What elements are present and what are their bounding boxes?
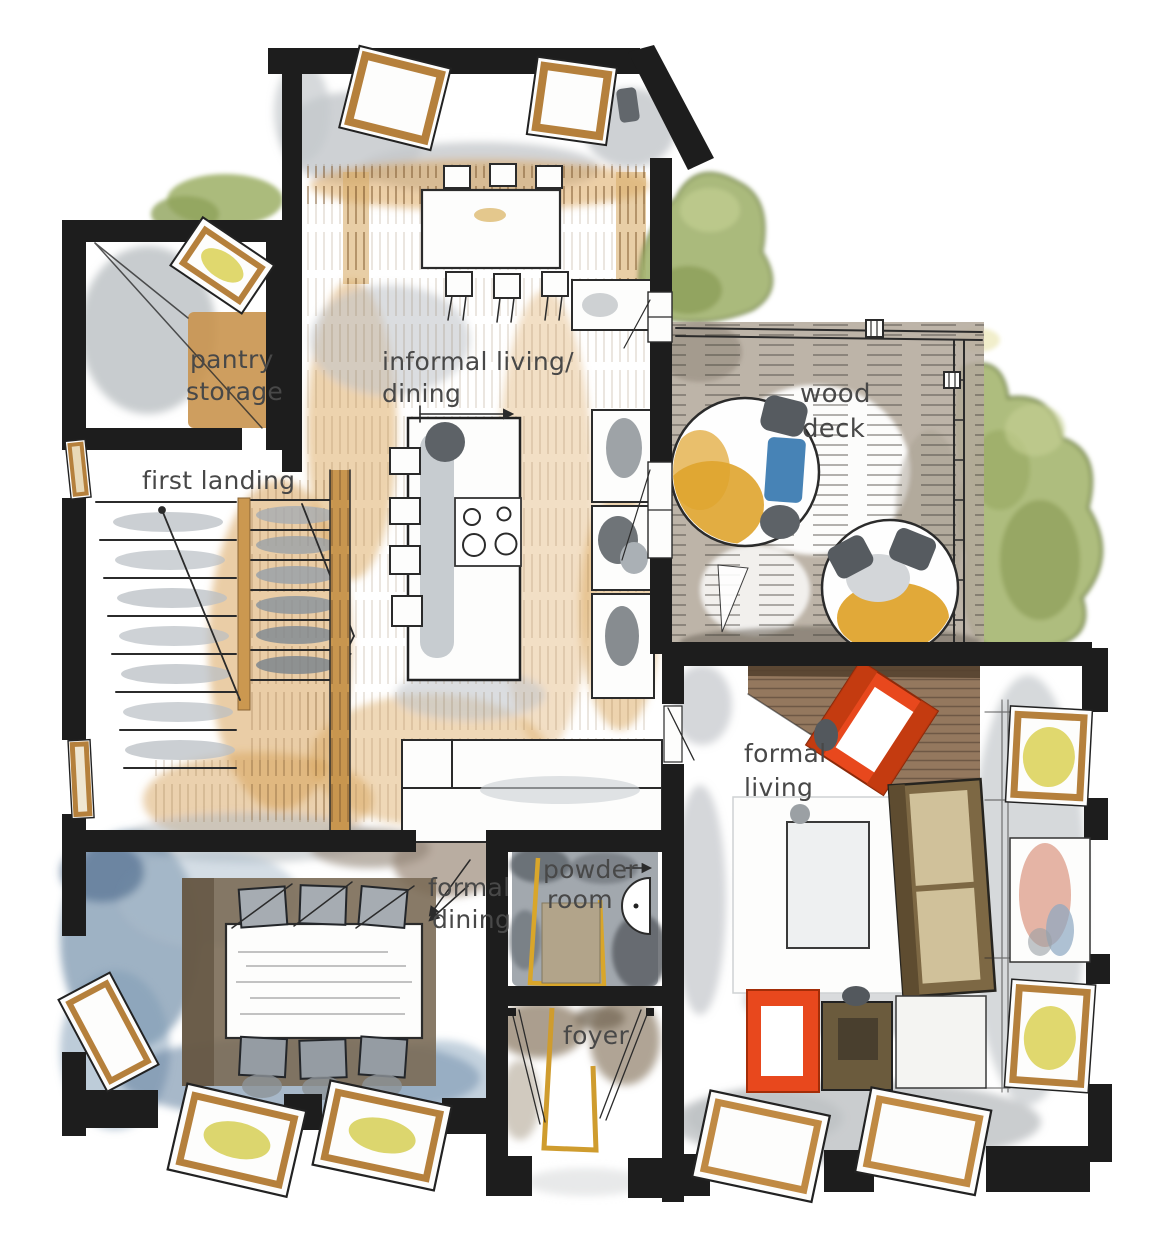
sink-drain	[634, 904, 639, 909]
cushion	[760, 505, 800, 539]
doorway	[664, 706, 682, 762]
stair-divider	[238, 498, 250, 710]
label-line: living	[744, 773, 813, 802]
wall-segment	[1088, 1084, 1112, 1162]
chair	[299, 1039, 346, 1079]
room-label-first-landing: first landing	[142, 466, 295, 495]
railing-post	[866, 320, 883, 337]
room-formal-living	[733, 652, 1010, 1092]
label-line: foyer	[563, 1021, 629, 1050]
chair	[494, 274, 520, 298]
wall-segment	[500, 830, 672, 852]
chair	[444, 166, 470, 188]
watercolor-floor-plan: pantry storage first landing informal li…	[0, 0, 1160, 1258]
chair	[359, 1036, 408, 1077]
wall-segment	[1082, 648, 1108, 712]
bar-stool	[390, 498, 420, 524]
floor-plan-drawing: pantry storage first landing informal li…	[0, 0, 1160, 1258]
wood-wall-stripes	[330, 470, 350, 840]
cabinet-shade	[480, 776, 640, 804]
bar-stool	[390, 546, 420, 574]
label-line: storage	[186, 377, 283, 406]
kitchen-island	[408, 418, 521, 680]
bath-mat	[542, 903, 600, 983]
wall-segment	[62, 814, 86, 936]
coffee-table	[787, 822, 869, 948]
dining-chairs-top	[232, 882, 414, 928]
bar-stool	[392, 596, 422, 626]
armchair-orange	[747, 990, 819, 1092]
chair	[490, 164, 516, 186]
room-formal-dining	[182, 878, 468, 1100]
wall-segment	[486, 1156, 532, 1196]
towel	[764, 437, 806, 503]
wall-segment	[282, 58, 302, 472]
label-line: wood	[800, 379, 871, 409]
seat-cushion	[761, 1006, 803, 1076]
cabinet	[402, 740, 454, 790]
wall-segment	[650, 558, 672, 654]
label-line: powder	[543, 855, 638, 884]
room-label-formal-living: formal living	[744, 739, 835, 802]
wall-segment	[84, 830, 416, 852]
dining-table	[422, 190, 560, 268]
wall-segment	[62, 498, 86, 740]
chair	[446, 272, 472, 296]
wall-segment	[62, 220, 86, 442]
wall-segment	[62, 1090, 158, 1128]
armchair-white	[896, 996, 986, 1088]
label-line: room	[547, 885, 613, 914]
sofa-cushion	[909, 790, 973, 886]
sink-strip	[420, 432, 454, 658]
rug-edge	[182, 878, 214, 1086]
label-line: dining	[432, 905, 511, 934]
wall-segment	[650, 342, 672, 464]
sofa	[889, 779, 996, 997]
sink-basin	[425, 422, 465, 462]
cooktop	[455, 498, 521, 566]
decor	[790, 804, 810, 824]
table-decor	[474, 208, 506, 222]
decor	[842, 986, 870, 1006]
wood-band-stripes	[343, 172, 369, 284]
room-label-foyer: foyer	[563, 1021, 629, 1050]
counter-shade	[582, 293, 618, 317]
room-wood-deck	[658, 320, 984, 658]
bush-highlight	[1005, 404, 1065, 456]
bar-stool	[390, 448, 420, 474]
window	[1005, 706, 1092, 806]
door-jamb	[508, 1008, 516, 1016]
sofa-cushion	[916, 888, 980, 984]
papasan-chair	[822, 520, 958, 656]
label-line: formal	[744, 739, 826, 768]
window	[1004, 979, 1095, 1093]
label-line: formal	[428, 873, 510, 902]
wall-segment	[650, 158, 672, 294]
chair	[542, 272, 568, 296]
window	[68, 740, 94, 819]
label-line: dining	[382, 379, 461, 408]
wall-segment	[62, 428, 242, 450]
railing-post	[944, 372, 960, 388]
window-art	[1010, 838, 1090, 962]
chair	[239, 1037, 287, 1077]
wall-segment	[664, 642, 1092, 666]
appliance-column	[592, 410, 654, 698]
wall-segment	[662, 646, 684, 704]
wall-segment	[662, 764, 684, 1202]
wall-segment	[504, 986, 666, 1006]
door-jamb	[646, 1008, 654, 1016]
wall-segment	[986, 1146, 1090, 1192]
label-line: deck	[802, 414, 865, 444]
side-table-top	[838, 1018, 878, 1060]
chair	[536, 166, 562, 188]
dining-table	[226, 924, 422, 1038]
wall-segment	[62, 220, 288, 242]
label-line: pantry	[190, 345, 274, 374]
label-line: first landing	[142, 466, 295, 495]
bush-shade	[1000, 500, 1080, 620]
bush-highlight	[680, 188, 740, 232]
stairs-stripes	[150, 760, 350, 840]
label-line: informal living/	[382, 347, 574, 376]
wall-segment	[628, 1158, 676, 1198]
skylight-window	[527, 57, 617, 145]
